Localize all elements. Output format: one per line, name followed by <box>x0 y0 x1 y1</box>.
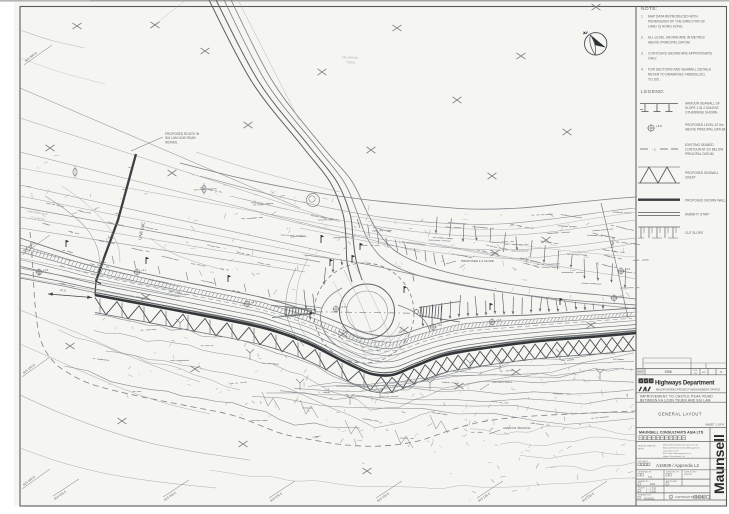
svg-text:MAJOR WORKS PROJECT MANAGEMENT: MAJOR WORKS PROJECT MANAGEMENT OFFICE <box>656 387 720 391</box>
svg-text:+4.6: +4.6 <box>625 267 631 271</box>
svg-text:ARMOUR SEAWALL OF: ARMOUR SEAWALL OF <box>685 102 720 106</box>
svg-text:4.: 4. <box>641 68 644 72</box>
svg-text:TSUEN: TSUEN <box>346 60 355 64</box>
svg-text:ABOVE PRINCIPAL DATUM: ABOVE PRINCIPAL DATUM <box>648 41 690 45</box>
svg-text:Maunsell: Maunsell <box>711 434 727 494</box>
svg-text:+4.8: +4.8 <box>437 323 443 327</box>
svg-text:+4.75: +4.75 <box>340 305 347 309</box>
svg-text:PROPOSED 1:2 SLOPE: PROPOSED 1:2 SLOPE <box>461 259 494 263</box>
svg-text:Highways Department: Highways Department <box>655 381 714 387</box>
svg-text:ALL LEVEL SHOWN ARE IN METRES: ALL LEVEL SHOWN ARE IN METRES <box>648 36 706 40</box>
svg-text:SHEET 1 OF 8: SHEET 1 OF 8 <box>705 422 724 426</box>
svg-text:NOTE:: NOTE: <box>641 6 658 12</box>
svg-text:DESIGNED BY: DESIGNED BY <box>638 472 652 474</box>
svg-text:LAND X( HONG KONG.: LAND X( HONG KONG. <box>648 25 683 29</box>
svg-text:MAUNSELL CONSULTANTS ASIA LTD: MAUNSELL CONSULTANTS ASIA LTD <box>639 431 704 435</box>
svg-text:GENERAL LAYOUT: GENERAL LAYOUT <box>658 411 702 416</box>
svg-text:+4.1: +4.1 <box>141 268 147 272</box>
svg-text:EXISTING SEABED: EXISTING SEABED <box>685 143 714 147</box>
svg-text:IN ASSOCIATION: IN ASSOCIATION <box>638 445 656 448</box>
svg-text:1988: 1988 <box>664 370 672 374</box>
svg-text:Hyder Consultants Ltd: Hyder Consultants Ltd <box>663 455 685 458</box>
svg-text:FOR SECTIONS AND SEAWALL DETAI: FOR SECTIONS AND SEAWALL DETAILS <box>648 68 712 72</box>
svg-text:AMENITY STRIP: AMENITY STRIP <box>685 213 709 217</box>
svg-text:STATUS: STATUS <box>684 473 692 476</box>
svg-text:DRAWING NO.: DRAWING NO. <box>638 494 652 497</box>
svg-text:MAP DATA REPRODUCED WITH: MAP DATA REPRODUCED WITH <box>648 15 698 19</box>
svg-text:ONLY.: ONLY. <box>648 57 658 61</box>
svg-text:2.: 2. <box>641 36 644 40</box>
svg-text:PERMISSION OF THE DIRECTOR OF: PERMISSION OF THE DIRECTOR OF <box>648 20 705 24</box>
svg-text:- 2: - 2 <box>652 148 656 152</box>
svg-text:PROJECT: PROJECT <box>638 461 649 463</box>
svg-text:REFER TO DRAWINGS 74899/SL/101: REFER TO DRAWINGS 74899/SL/101 <box>648 73 705 77</box>
svg-text:SCALE: SCALE <box>638 487 645 490</box>
svg-text:PROPOSED SEAWALL: PROPOSED SEAWALL <box>685 171 719 175</box>
svg-text:OTHERWISE SHOWN.: OTHERWISE SHOWN. <box>685 111 718 115</box>
svg-text:PRINCIPAL DATUM.: PRINCIPAL DATUM. <box>685 152 714 156</box>
svg-text:CREST: CREST <box>685 176 696 180</box>
svg-text:R.A.: R.A. <box>694 369 698 372</box>
svg-text:PROPOSED CROWN WALL: PROPOSED CROWN WALL <box>685 199 726 203</box>
svg-text:ABOVE PRINCIPAL DATUM: ABOVE PRINCIPAL DATUM <box>685 128 726 132</box>
svg-text:1.: 1. <box>641 15 644 19</box>
svg-text:APPROVED: APPROVED <box>666 480 678 483</box>
svg-text:27.5: 27.5 <box>60 288 66 293</box>
svg-text:Consultants Ltd: Consultants Ltd <box>663 449 679 452</box>
svg-text:ML Project Management Ltd: ML Project Management Ltd <box>663 452 691 455</box>
svg-text:CUT SLOPE: CUT SLOPE <box>685 231 703 235</box>
svg-text:Maunsell Geotechnical Services: Maunsell Geotechnical Services Ltd <box>663 444 699 447</box>
svg-text:WITH :: WITH : <box>638 449 645 451</box>
svg-text:DATE & DWG: DATE & DWG <box>684 471 697 474</box>
svg-text:DRAWN BY: DRAWN BY <box>638 480 649 483</box>
svg-text:APR: APR <box>702 371 707 374</box>
svg-text:3.: 3. <box>641 52 644 56</box>
svg-text:WORKS.: WORKS. <box>165 140 178 144</box>
svg-text:A15939 / Appendix L2: A15939 / Appendix L2 <box>656 463 700 468</box>
svg-text:+4.8: +4.8 <box>43 268 49 272</box>
svg-text:TO 105.: TO 105. <box>648 78 660 82</box>
svg-text:+4.8: +4.8 <box>656 124 662 128</box>
svg-text:ARMOUR SEAWALL: ARMOUR SEAWALL <box>503 426 531 430</box>
svg-text:DLN: DLN <box>650 482 655 486</box>
svg-text:CHECKED BY: CHECKED BY <box>666 472 680 474</box>
svg-text:PROPOSED LEVEL AT 5m: PROPOSED LEVEL AT 5m <box>685 123 724 127</box>
svg-text:CROWN WALL: CROWN WALL <box>492 380 513 384</box>
svg-text:LEGEND:: LEGEND: <box>641 89 665 95</box>
svg-text:71: 71 <box>719 370 723 374</box>
svg-text:CONTOUR AT 2m BELOW: CONTOUR AT 2m BELOW <box>685 148 723 152</box>
svg-text:CONTOURS SHOWN ARE APPROXIMATE: CONTOURS SHOWN ARE APPROXIMATE <box>648 52 713 56</box>
svg-text:+4.8: +4.8 <box>496 318 502 322</box>
svg-text:Maunsell Environmental Managem: Maunsell Environmental Management <box>663 446 700 449</box>
svg-text:SLOPE 1 IN 2 UNLESS: SLOPE 1 IN 2 UNLESS <box>685 106 719 110</box>
svg-text:+4.7: +4.7 <box>251 300 257 304</box>
svg-text:T.H.: T.H. <box>648 475 653 479</box>
